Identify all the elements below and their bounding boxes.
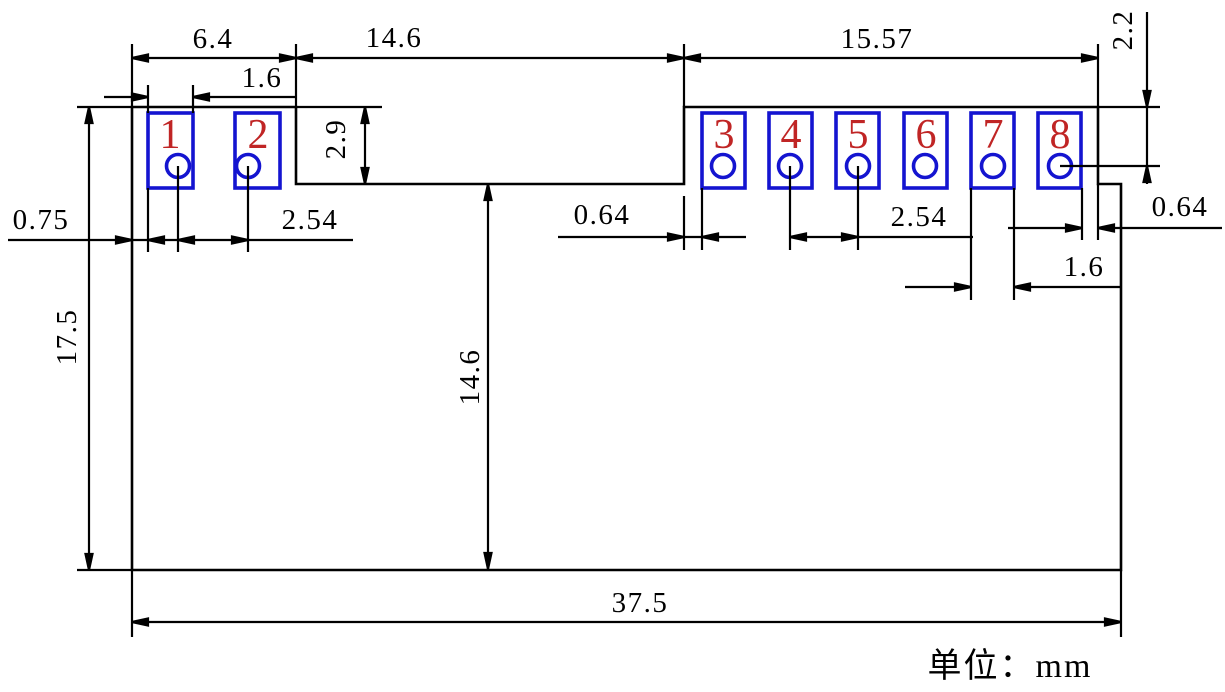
dim-label-0-64-right: 0.64 (1152, 191, 1209, 223)
arrowhead (668, 234, 684, 241)
dim-label-1-6-left: 1.6 (242, 62, 283, 94)
dim-label-0-64-mid: 0.64 (574, 199, 631, 231)
dim-label-37-5: 37.5 (612, 587, 669, 619)
arrowhead (1144, 166, 1151, 182)
arrowhead (362, 107, 369, 123)
arrowhead (280, 55, 296, 62)
dim-label-15-57: 15.57 (841, 23, 914, 55)
pad-number-6: 6 (916, 112, 937, 158)
dim-label-6-4: 6.4 (193, 23, 234, 55)
arrowhead (132, 619, 148, 626)
pad-number-3: 3 (714, 112, 735, 158)
unit-note: 单位：mm (928, 647, 1093, 685)
dim-label-2-54-right: 2.54 (891, 201, 948, 233)
arrowhead (1082, 55, 1098, 62)
pads (148, 113, 1081, 188)
arrowhead (1098, 225, 1114, 232)
technical-drawing-canvas: 1 2 3 4 5 6 7 8 (0, 0, 1225, 692)
arrowhead (132, 55, 148, 62)
arrowhead (1144, 91, 1151, 107)
arrowhead (684, 55, 700, 62)
arrowhead (148, 237, 164, 244)
arrowhead (362, 168, 369, 184)
arrowhead (702, 234, 718, 241)
arrowhead (132, 94, 148, 101)
arrowhead (296, 55, 312, 62)
dim-label-2-2: 2.2 (1107, 10, 1139, 51)
dim-label-2-9: 2.9 (320, 119, 352, 160)
arrowhead (485, 184, 492, 200)
dim-label-0-75: 0.75 (13, 204, 70, 236)
pad-number-7: 7 (983, 112, 1004, 158)
arrowhead (485, 553, 492, 569)
pad-number-4: 4 (781, 112, 802, 158)
dimension-drawing: 1 2 3 4 5 6 7 8 (0, 0, 1225, 692)
arrowhead (955, 284, 971, 291)
pad-number-1: 1 (160, 112, 181, 158)
pad-number-5: 5 (848, 112, 869, 158)
arrowhead (1105, 619, 1121, 626)
dim-label-2-54-left: 2.54 (282, 204, 339, 236)
dim-body-height (77, 107, 132, 570)
arrowhead (842, 234, 858, 241)
arrowhead (232, 237, 248, 244)
pad-number-2: 2 (248, 112, 269, 158)
arrowhead (86, 107, 93, 123)
arrowhead (178, 237, 194, 244)
dim-label-14-6-vert: 14.6 (454, 349, 486, 406)
dim-label-1-6-right: 1.6 (1064, 251, 1105, 283)
arrowhead (790, 234, 806, 241)
dim-label-17-5: 17.5 (51, 309, 83, 366)
pad-number-8: 8 (1050, 112, 1071, 158)
arrowhead (1066, 225, 1082, 232)
arrowhead (86, 554, 93, 570)
arrowhead (116, 237, 132, 244)
arrowhead (193, 94, 209, 101)
dim-label-14-6-top: 14.6 (366, 22, 423, 54)
arrowhead (668, 55, 684, 62)
arrowhead (1014, 284, 1030, 291)
